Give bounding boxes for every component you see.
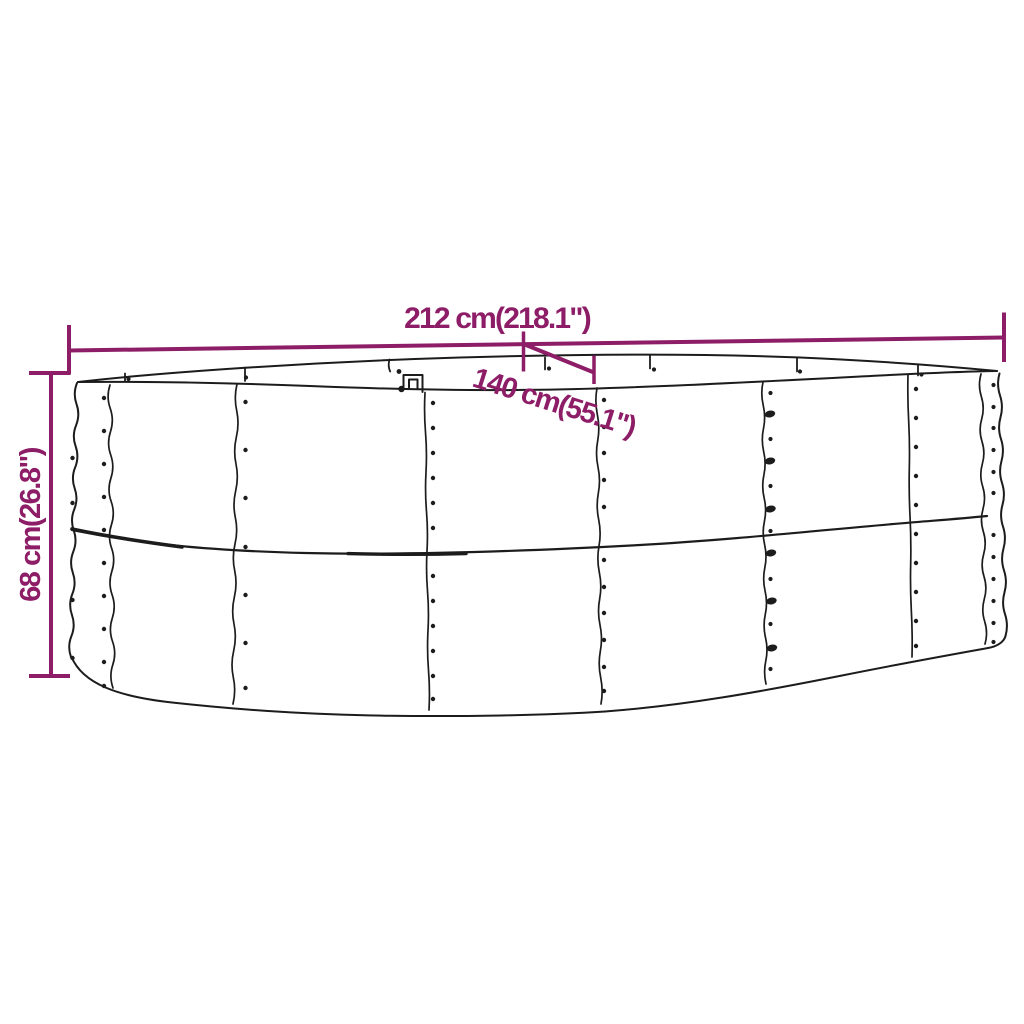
corrugation-line — [69, 383, 78, 657]
bracket-bolt — [398, 386, 404, 392]
rivet — [914, 416, 918, 420]
corrugation-line — [979, 374, 986, 644]
rivet — [914, 619, 918, 623]
rivet — [102, 684, 106, 688]
rivet — [914, 644, 918, 648]
rivet — [768, 667, 772, 671]
rivet — [768, 391, 772, 395]
rivet — [602, 505, 606, 509]
rivet — [70, 598, 74, 602]
rivet — [768, 622, 772, 626]
rivet — [602, 478, 606, 482]
rivet — [914, 474, 918, 478]
bolt — [765, 549, 777, 558]
height-dimension-label: 68 cm(26.8") — [15, 447, 47, 602]
rivet — [914, 503, 918, 507]
rivet — [768, 437, 772, 441]
rivet — [70, 656, 74, 660]
rivet — [243, 593, 247, 597]
rivet — [768, 577, 772, 581]
rivet — [102, 528, 106, 532]
rivet — [914, 445, 918, 449]
product-dimension-diagram: 212 cm(218.1") 140 cm(55.1") 68 cm(26.8"… — [0, 0, 1024, 1024]
rivet — [431, 649, 435, 653]
rivet — [602, 558, 606, 562]
rivet — [431, 624, 435, 628]
rivet — [991, 555, 995, 559]
rivet — [243, 545, 247, 549]
bolt — [766, 597, 778, 606]
mid-seam-shadow-left — [72, 529, 182, 547]
width-dimension-label: 212 cm(218.1") — [404, 302, 591, 335]
depth-dimension-line — [524, 344, 595, 384]
rim-back-edge — [78, 355, 997, 382]
rivet — [991, 470, 995, 474]
bolt — [764, 410, 776, 419]
rivet — [991, 405, 995, 409]
rivet — [431, 476, 435, 480]
rivet — [602, 689, 606, 693]
rivet — [243, 686, 247, 690]
rivet — [431, 697, 435, 701]
rivet — [991, 577, 995, 581]
rivet — [602, 611, 606, 615]
rivet — [102, 627, 106, 631]
rivet — [102, 660, 106, 664]
corrugation-line — [232, 384, 238, 704]
rivet — [102, 462, 106, 466]
bottom-edge — [72, 648, 989, 716]
rivet — [914, 561, 918, 565]
rivet — [991, 383, 995, 387]
rivet — [602, 638, 606, 642]
rivet — [991, 491, 995, 495]
rivet — [602, 665, 606, 669]
rivet — [102, 429, 106, 433]
corrugation-line — [908, 375, 912, 658]
rivet — [102, 594, 106, 598]
corrugation-and-seam-lines — [69, 374, 1007, 711]
corrugation-line — [998, 374, 1007, 637]
rivet — [243, 496, 247, 500]
rivet — [431, 526, 435, 530]
rivet — [602, 451, 606, 455]
rivet — [914, 532, 918, 536]
rivet — [243, 448, 247, 452]
rivet — [991, 426, 995, 430]
rivet — [914, 590, 918, 594]
rivet — [431, 451, 435, 455]
rivet — [431, 401, 435, 405]
rivet — [991, 533, 995, 537]
rivet — [991, 448, 995, 452]
right-cap-bottom — [988, 636, 1006, 648]
rivet — [243, 400, 247, 404]
dimension-lines — [29, 313, 1004, 677]
corrugation-line — [425, 393, 430, 711]
rivet — [102, 561, 106, 565]
bolt — [766, 644, 778, 653]
rivet — [431, 674, 435, 678]
raised-garden-bed-line-drawing: 212 cm(218.1") 140 cm(55.1") 68 cm(26.8"… — [0, 0, 1024, 1024]
corrugation-line — [762, 382, 767, 684]
mid-seam-shadow-center — [348, 554, 466, 555]
rivet — [991, 640, 995, 644]
panel-mid-seam — [72, 516, 987, 554]
rivet — [102, 495, 106, 499]
rivet — [602, 585, 606, 589]
rivet — [102, 396, 106, 400]
rivet — [70, 456, 74, 460]
rivet — [431, 501, 435, 505]
bracket-rivet — [397, 369, 402, 374]
rivet — [768, 529, 772, 533]
rivet — [431, 574, 435, 578]
rivet — [914, 387, 918, 391]
rivet — [431, 599, 435, 603]
rivet — [991, 621, 995, 625]
rivet — [243, 641, 247, 645]
rivet — [70, 501, 74, 505]
depth-dimension-label: 140 cm(55.1") — [469, 362, 640, 443]
rivet — [431, 426, 435, 430]
seam-rivet-dots — [70, 383, 995, 701]
rivet — [991, 599, 995, 603]
rivet — [768, 484, 772, 488]
